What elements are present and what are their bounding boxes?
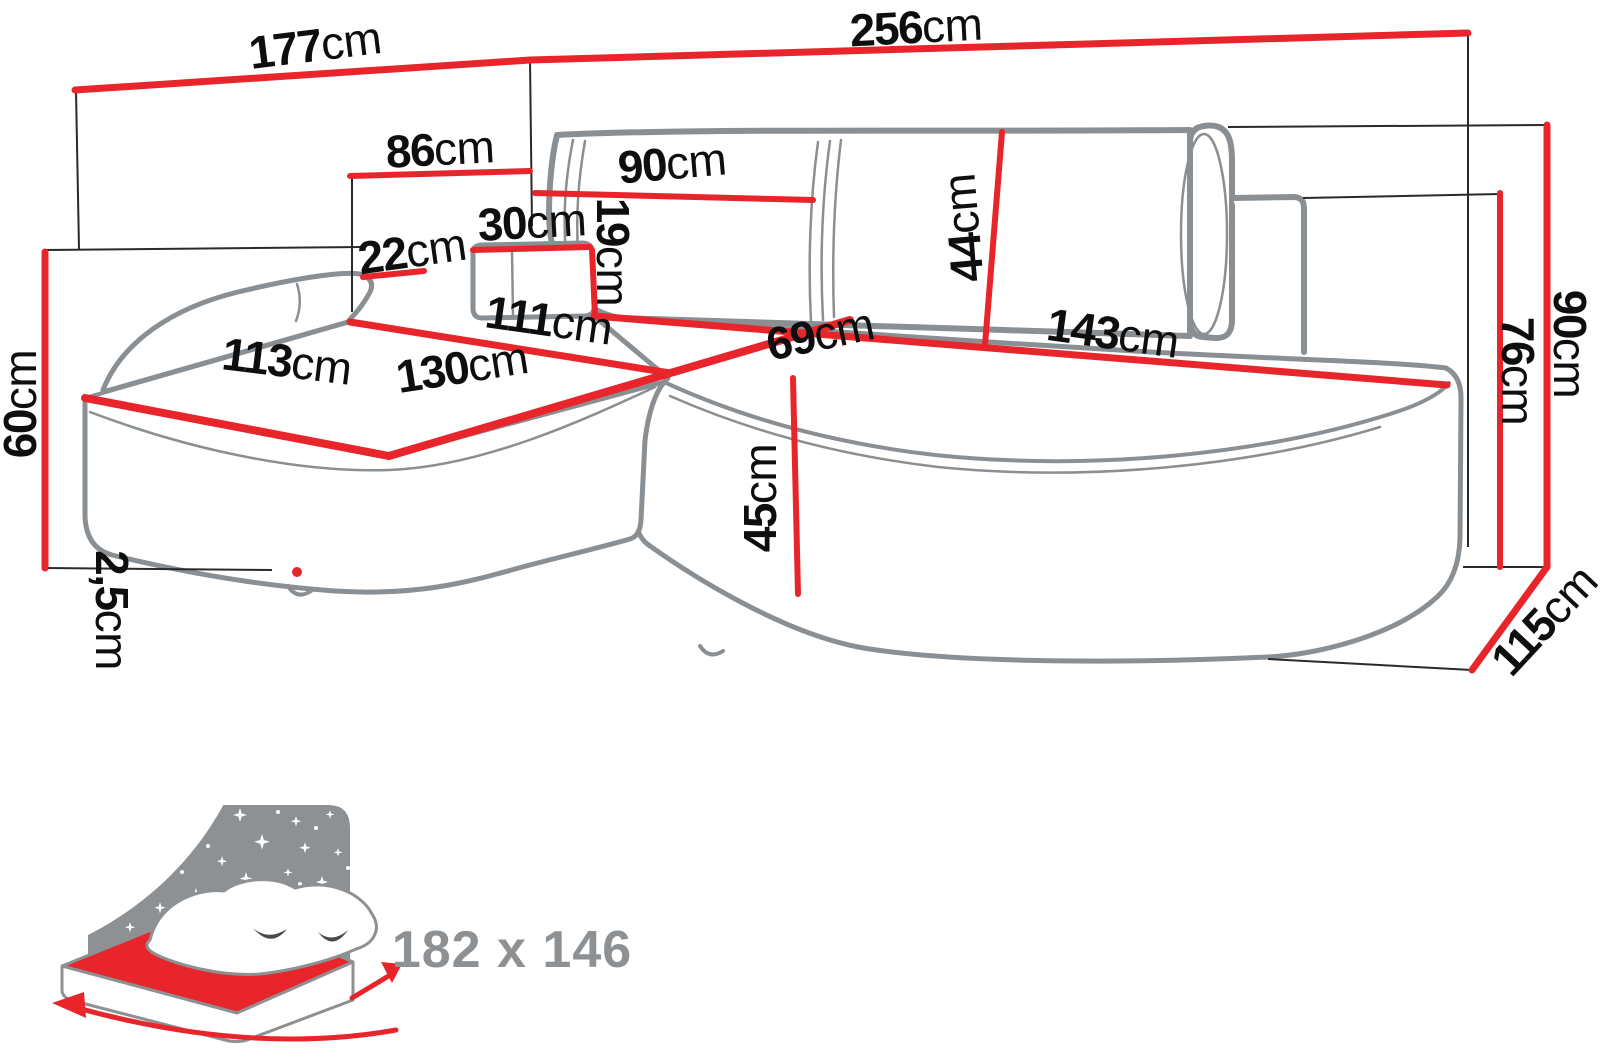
leg-height-marker bbox=[292, 567, 302, 577]
dimension-label-30: 30cm bbox=[477, 196, 588, 248]
diagram-canvas bbox=[0, 0, 1600, 1059]
sleeping-area-size-label: 182 x 146 bbox=[392, 924, 632, 976]
dimension-label-76: 76cm bbox=[1495, 317, 1541, 426]
sofa-dimension-diagram: 177cm 256cm 86cm 90cm 30cm 19cm 22cm 44c… bbox=[0, 0, 1600, 1059]
sofa-foot-middle bbox=[700, 646, 723, 655]
right-back-panel bbox=[1232, 197, 1304, 352]
dimension-label-90-backrest: 90cm bbox=[616, 135, 728, 190]
sofa-sketch bbox=[85, 126, 1461, 662]
dimension-label-19: 19cm bbox=[590, 198, 636, 307]
sleeping-function-icon bbox=[52, 796, 402, 1042]
dimension-label-90-height: 90cm bbox=[1547, 290, 1593, 399]
dimension-label-44: 44cm bbox=[935, 172, 990, 284]
dimension-label-45: 45cm bbox=[737, 444, 783, 553]
depth-arrow bbox=[352, 974, 392, 998]
dimension-label-60: 60cm bbox=[0, 350, 43, 459]
dimension-line-256 bbox=[530, 33, 1468, 60]
dimension-label-256: 256cm bbox=[849, 1, 984, 54]
dimension-label-2-5: 2,5cm bbox=[89, 550, 135, 670]
dimension-label-86: 86cm bbox=[385, 123, 496, 175]
right-armrest-pillow bbox=[1190, 126, 1232, 339]
right-seat-body bbox=[594, 316, 1461, 661]
